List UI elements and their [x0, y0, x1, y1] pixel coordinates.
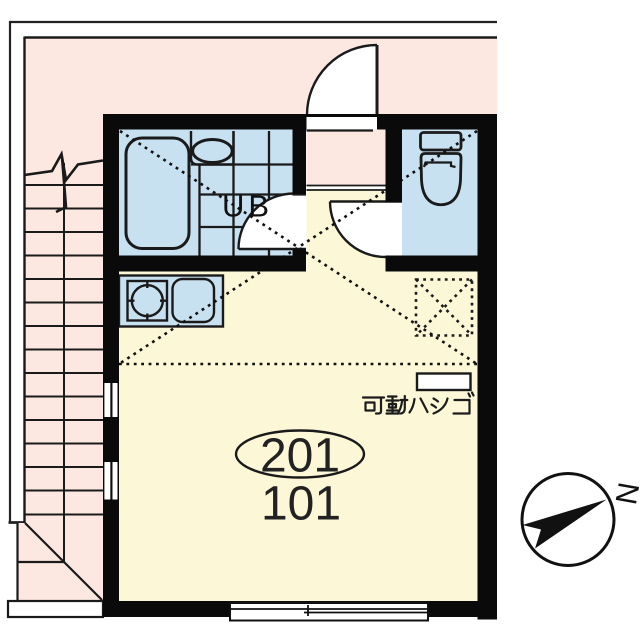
svg-text:UB: UB	[222, 189, 273, 224]
svg-text:101: 101	[261, 478, 341, 531]
svg-text:201: 201	[260, 430, 340, 483]
svg-text:N: N	[608, 480, 640, 507]
